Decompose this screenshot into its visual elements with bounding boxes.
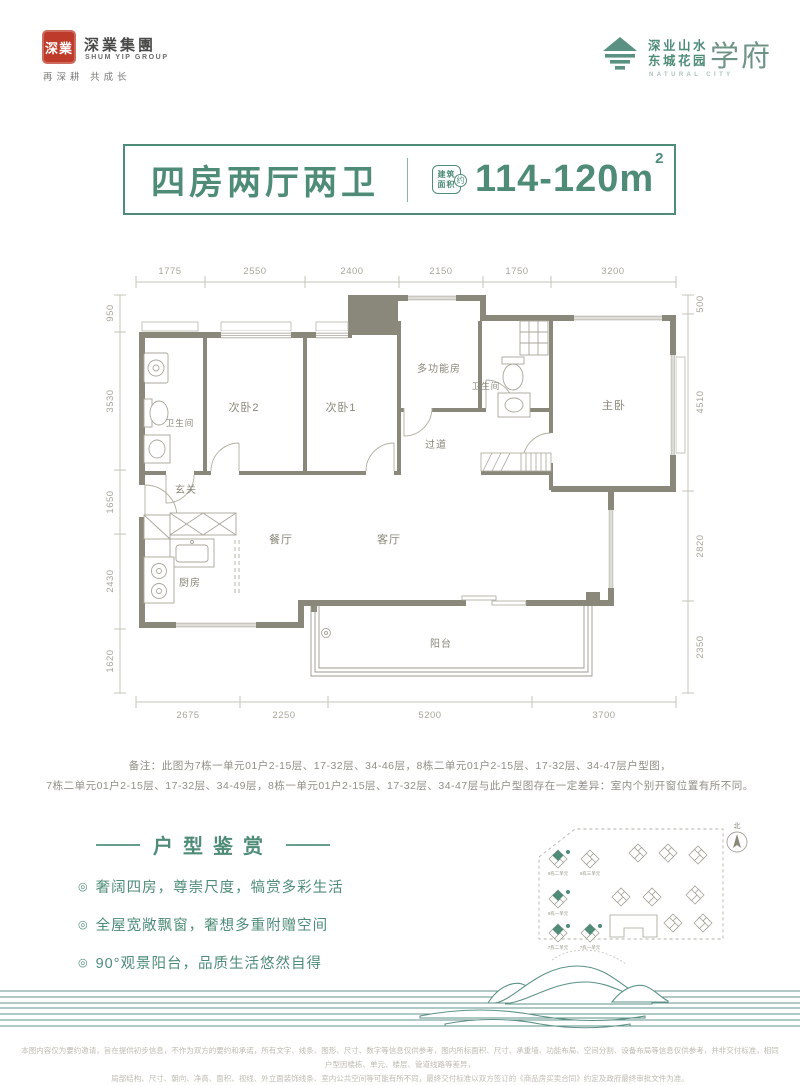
- notes-label: 备注：: [129, 760, 162, 772]
- ridge-sketch: [552, 950, 626, 964]
- building-label-3: 8栋一单元: [548, 910, 569, 917]
- compass: 北: [727, 822, 747, 852]
- dim-bottom-2: 2250: [272, 710, 295, 721]
- dim-top-4: 2150: [429, 266, 452, 277]
- bullet-icon: ◎: [78, 880, 89, 893]
- dim-top-3: 2400: [340, 266, 363, 277]
- area-stamp: 建筑 面积 约: [432, 165, 461, 194]
- compass-north-label: 北: [734, 822, 741, 830]
- room-label-bed1: 次卧1: [325, 400, 356, 414]
- disclaimer-line2: 局部结构、尺寸、朝向、净高、面积、视线、外立面装饰线条、室内公共空间等可能有所不…: [111, 1074, 689, 1083]
- appreciation-bullet-1: ◎ 奢阔四房，尊崇尺度，犒赏多彩生活: [78, 876, 408, 897]
- walls: [139, 295, 676, 628]
- dim-left-5: 1620: [105, 649, 116, 672]
- wave-decoration: [0, 938, 800, 1038]
- disclaimer: 本图内容仅为要约邀请，旨在提供初步信息，不作为双方的要约和承诺，所有文字、线条、…: [20, 1044, 780, 1085]
- disclaimer-line1: 本图内容仅为要约邀请，旨在提供初步信息，不作为双方的要约和承诺，所有文字、线条、…: [21, 1046, 779, 1069]
- dim-top-6: 3200: [601, 266, 624, 277]
- project-name-line1: 深业山水: [648, 39, 708, 54]
- stamp-about: 约: [454, 174, 467, 187]
- dim-left-1: 950: [105, 304, 116, 321]
- wave-lines: [0, 991, 800, 1026]
- area-value: 114-120m2: [475, 158, 664, 201]
- notes-line1: 此图为7栋一单元01户2-15层、17-32层、34-46层，8栋二单元01户2…: [162, 760, 672, 772]
- building-label-1: 8栋二单元: [548, 870, 569, 877]
- group-name: 深業集團: [84, 34, 156, 55]
- stamp-line2: 面积: [438, 180, 456, 190]
- group-slogan: 再深耕 共成长: [43, 69, 131, 83]
- group-name-en: SHUM YIP GROUP: [85, 54, 169, 61]
- project-name: 深业山水 东城花园: [648, 39, 708, 69]
- unit-type-title: 四房两厅两卫: [151, 155, 379, 204]
- shumyip-seal-logo: 深業: [42, 30, 76, 64]
- notes-line2: 7栋二单元01户2-15层、17-32层、34-49层，8栋一单元01户2-15…: [46, 780, 754, 792]
- dim-top-5: 1750: [505, 266, 528, 277]
- site-center-building: [610, 915, 657, 937]
- banner-divider: [407, 158, 408, 202]
- dim-left-4: 2430: [105, 569, 116, 592]
- project-logo-icon: [602, 36, 638, 81]
- project-suffix: 学府: [710, 33, 772, 75]
- stamp-line1: 建筑: [438, 170, 456, 180]
- room-label-bed2: 次卧2: [228, 400, 259, 414]
- heading-line-left: [96, 844, 140, 846]
- diamond-top: [603, 37, 637, 51]
- dim-right-3: 2820: [695, 534, 706, 557]
- brochure-page: 深業 深業集團 SHUM YIP GROUP 再深耕 共成长 深业山水 东城花园…: [0, 0, 800, 1085]
- room-label-kitchen: 厨房: [179, 576, 201, 589]
- dim-bottom-4: 3700: [592, 710, 615, 721]
- room-label-corridor: 过道: [425, 438, 447, 451]
- area-sup: 2: [655, 150, 664, 167]
- dim-top-1: 1775: [158, 266, 181, 277]
- building-label-2: 8栋三单元: [580, 870, 601, 877]
- dim-bottom-1: 2675: [176, 710, 199, 721]
- room-label-dining: 餐厅: [269, 532, 293, 546]
- appreciation-title: 户型鉴赏: [153, 830, 273, 859]
- dim-bottom-3: 5200: [418, 710, 441, 721]
- notes: 备注：此图为7栋一单元01户2-15层、17-32层、34-46层，8栋二单元0…: [40, 756, 760, 796]
- dim-left-3: 1650: [105, 490, 116, 513]
- dim-top-2: 2550: [243, 266, 266, 277]
- room-label-living: 客厅: [377, 532, 401, 546]
- room-label-bath2: 卫生间: [472, 381, 501, 391]
- heading-line-right: [286, 844, 330, 846]
- room-label-balcony: 阳台: [430, 637, 452, 650]
- dim-left-2: 3530: [105, 389, 116, 412]
- room-labels: 卫生间 次卧2 次卧1 多功能房 卫生间 主卧 过道 玄关 餐厅 客厅 厨房 阳…: [166, 362, 626, 650]
- bullet-icon: ◎: [78, 918, 89, 931]
- project-name-line2: 东城花园: [648, 54, 708, 69]
- site-buildings: [549, 844, 712, 942]
- dim-right-2: 4510: [695, 390, 706, 413]
- windows: [139, 295, 685, 628]
- room-label-master: 主卧: [602, 399, 626, 412]
- dim-right-4: 2350: [695, 635, 706, 658]
- closet-hatch: [481, 453, 551, 471]
- title-banner: 四房两厅两卫 建筑 面积 约 114-120m2: [123, 144, 676, 215]
- room-label-bath1: 卫生间: [166, 418, 195, 428]
- floor-plan: 1775 2550 2400 2150 1750 3200 950 3530 1…: [88, 250, 728, 735]
- project-name-en: NATURAL CITY: [649, 72, 734, 78]
- dim-right-1: 500: [695, 295, 706, 312]
- appreciation-bullet-2: ◎ 全屋宽敞飘窗，奢想多重附赠空间: [78, 914, 408, 935]
- room-label-multi: 多功能房: [417, 362, 461, 375]
- room-label-foyer: 玄关: [175, 483, 197, 496]
- appreciation-heading: 户型鉴赏: [96, 830, 408, 859]
